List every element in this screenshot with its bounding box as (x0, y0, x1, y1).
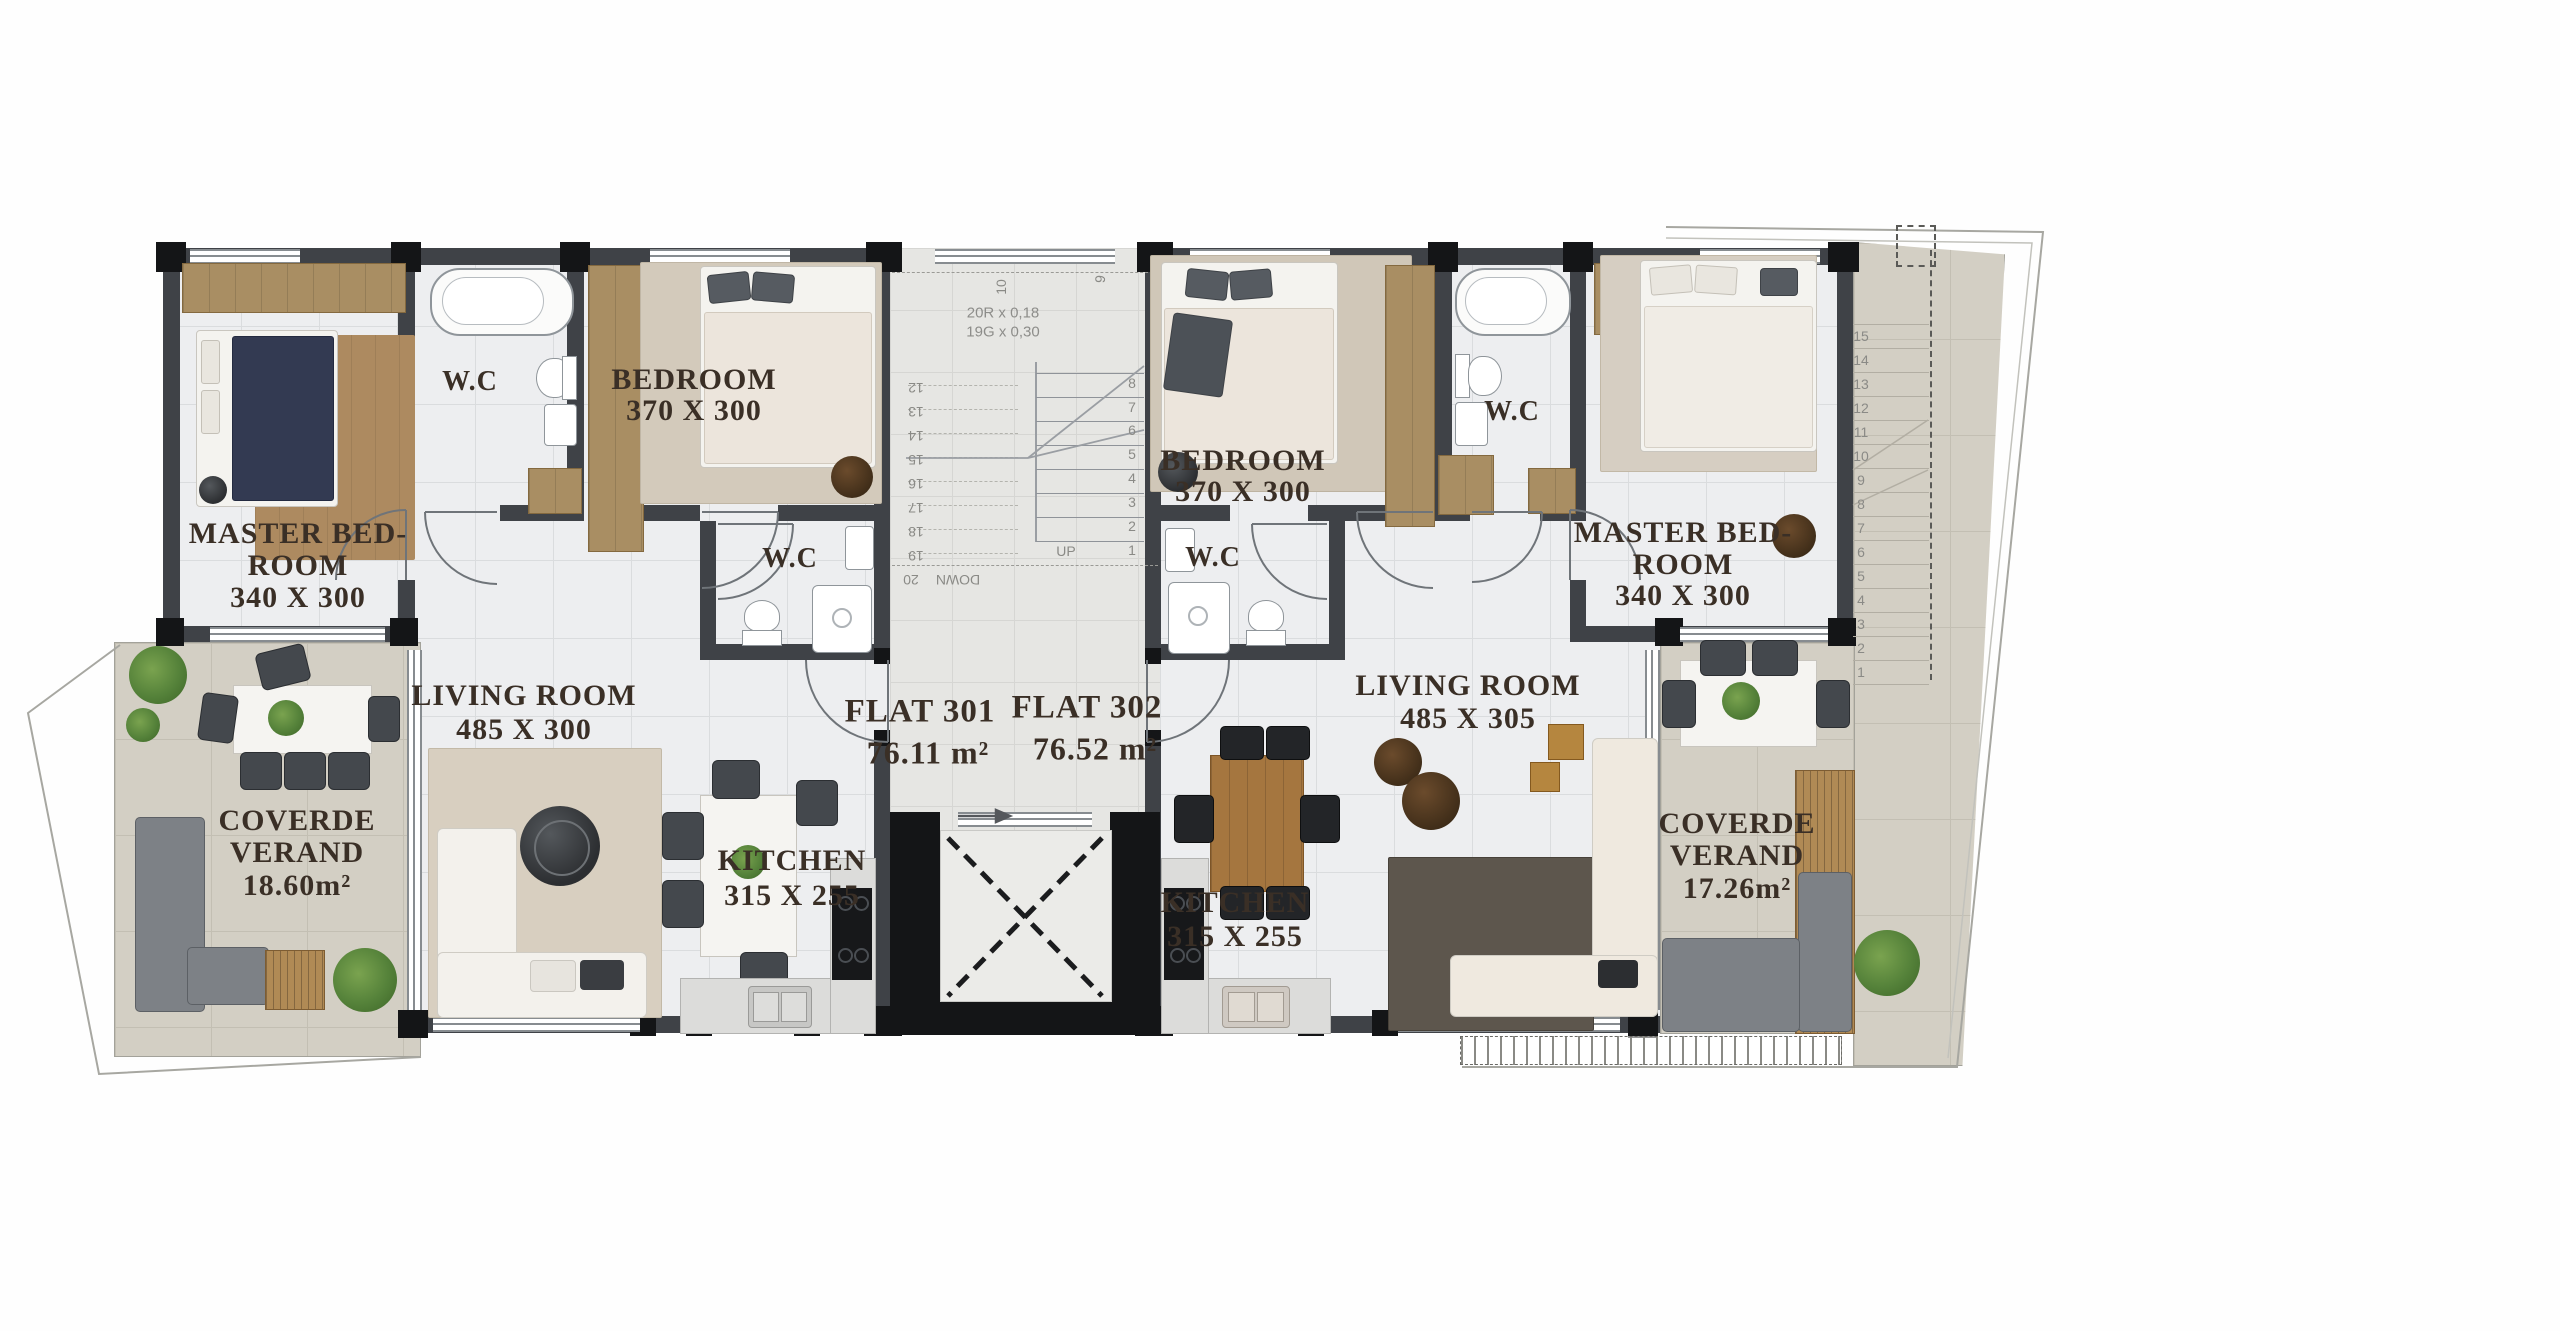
stair-step-number: 10 (993, 279, 1009, 295)
stair-step-number: 8 (1128, 375, 1136, 391)
stair-step-number: 11 (1854, 424, 1869, 440)
stair-step-number: 1 (1128, 542, 1136, 558)
stair-step-number: 8 (1857, 496, 1865, 512)
stair-step-number: 5 (1857, 568, 1865, 584)
stair-step-number: 3 (1128, 494, 1136, 510)
stair-step-number: 5 (1128, 446, 1136, 462)
stair-step-number: 14 (908, 428, 924, 444)
stair-step-number: 4 (1857, 592, 1865, 608)
stair-step-number: 13 (908, 404, 924, 420)
stair-step-number: 18 (908, 524, 924, 540)
stair-step-number: 9 (1857, 472, 1865, 488)
stair-step-number: 4 (1128, 470, 1136, 486)
stair-step-number: 1 (1857, 664, 1865, 680)
stair-step-number: 19 (908, 548, 924, 564)
stair-step-number: 2 (1857, 640, 1865, 656)
stair-step-number: 6 (1857, 544, 1865, 560)
stair-step-number: DOWN (936, 572, 980, 588)
stair-step-number: 10 (1853, 448, 1869, 464)
stair-step-number: 17 (908, 500, 924, 516)
stair-step-number: 16 (908, 476, 924, 492)
stair-step-number: 7 (1128, 399, 1136, 415)
stair-step-number: 12 (1853, 400, 1869, 416)
stair-step-number: 9 (1092, 274, 1109, 283)
stair-step-number: 13 (1853, 376, 1869, 392)
stair-step-number: 15 (908, 452, 924, 468)
floor-plan: MASTER BED- ROOM 340 X 300 W.C BEDROOM 3… (0, 0, 2560, 1331)
stair-step-number: 6 (1128, 422, 1136, 438)
stair-step-number: 2 (1128, 518, 1136, 534)
stair-step-number: 15 (1853, 328, 1869, 344)
stair-step-number: 12 (908, 380, 924, 396)
stair-step-number: 20 (903, 572, 919, 588)
stair-step-number: UP (1056, 543, 1075, 559)
stair-step-number: 3 (1857, 616, 1865, 632)
stair-step-number: 14 (1853, 352, 1869, 368)
stair-step-numbers: 12345678121314151617181920910UPDOWN12345… (0, 0, 2560, 1331)
stair-step-number: 7 (1857, 520, 1865, 536)
